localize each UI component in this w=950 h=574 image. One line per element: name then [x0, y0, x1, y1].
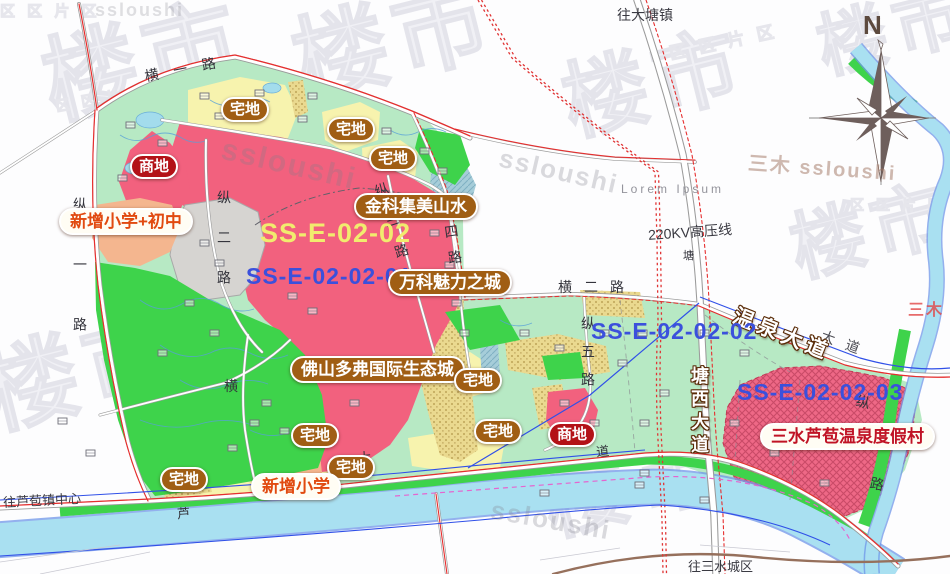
road-label-heng2: 横二路	[558, 277, 636, 297]
badge-vanke: 万科魅力之城	[388, 269, 512, 296]
badge-zhaidi-4: 宅地	[454, 368, 502, 393]
watermark-brand-combo: 三木 ssloushi	[747, 147, 897, 186]
direction-to-lubao: 往芦苞镇中心	[3, 488, 82, 511]
badge-zhaidi-5: 宅地	[474, 419, 522, 444]
badge-zhaidi-8: 宅地	[160, 467, 208, 492]
badge-school-primary: 新增小学	[251, 473, 341, 500]
road-label-tang: 塘	[683, 247, 694, 263]
direction-to-datang: 往大塘镇	[617, 5, 673, 25]
badge-shangdi-2: 商地	[548, 422, 596, 447]
watermark-brand-cn: 三木	[908, 296, 944, 320]
badge-shangdi-1: 商地	[130, 154, 178, 179]
road-label-tangxi-avenue: 塘西大道	[686, 366, 712, 458]
road-label-lubao-1: 芦	[176, 503, 190, 523]
badge-resort: 三水芦苞温泉度假村	[760, 423, 935, 450]
badge-jinke: 金科集美山水	[354, 193, 478, 220]
road-label-heng1: 横一路	[143, 50, 232, 86]
badge-zhaidi-3: 宅地	[369, 146, 417, 171]
zone-code-main: SS-E-02-02	[260, 218, 411, 249]
zone-code-sub02: SS-E-02-02-02	[591, 318, 757, 345]
map-labels: ssloushi ssloushi ssloushi ssloushi 三木 s…	[0, 0, 950, 574]
powerline-label: 220KV高压线	[647, 219, 732, 245]
badge-zhaidi-2: 宅地	[327, 117, 375, 142]
badge-school-combo: 新增小学+初中	[59, 208, 193, 235]
watermark-brand: ssloushi	[95, 0, 184, 21]
direction-to-sanshui: 往三水城区	[688, 556, 753, 574]
badge-duofu: 佛山多弗国际生态城	[290, 356, 465, 383]
watermark-brand: ssloushi	[218, 133, 360, 197]
badge-zhaidi-1: 宅地	[221, 97, 269, 122]
road-label-zong2: 纵二路	[214, 190, 234, 310]
road-label-heng-mid: 横	[224, 376, 238, 396]
road-label-zong6-char2: 路	[868, 473, 886, 495]
watermark-brand: ssloushi	[488, 495, 613, 547]
lorem-label: Lorem Ipsum	[621, 182, 724, 196]
zone-code-sub03: SS-E-02-02-03	[737, 379, 903, 406]
watermark-brand: ssloushi	[496, 143, 621, 201]
planning-map: 楼市 楼市 楼市 楼市 楼市 楼市 楼市 楼市 区 区 片 区 区 区 片 区 …	[0, 0, 950, 574]
compass-north-label: N	[863, 10, 882, 41]
badge-zhaidi-6: 宅地	[291, 423, 339, 448]
road-label-lubao-3: 道	[595, 440, 610, 460]
